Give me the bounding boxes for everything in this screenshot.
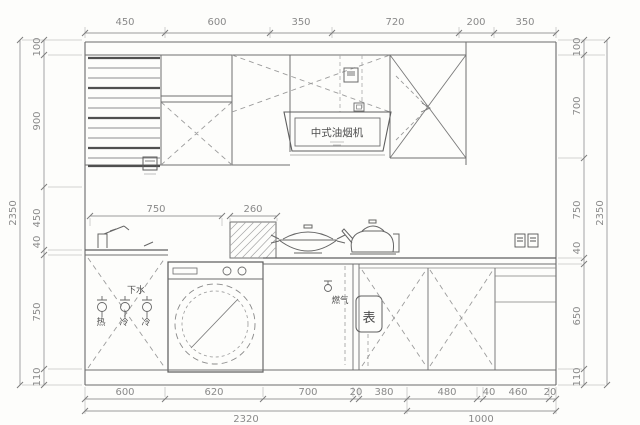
washer-display (173, 268, 197, 274)
dim-left-750: 750 (32, 302, 43, 321)
range-hood-label: 中式油烟机 (311, 126, 364, 139)
switch-box-marks (145, 161, 155, 165)
drawer-lines (495, 276, 556, 302)
dim-left-900: 900 (32, 111, 43, 130)
dim-left-100: 100 (32, 37, 43, 56)
right-cabinet-dividers (428, 268, 495, 370)
mid-dimension-row: 750 260 (87, 204, 280, 219)
dim-top-350: 350 (291, 17, 310, 28)
valve-label-cold2: 冷 (141, 316, 150, 328)
dim-left-40: 40 (32, 236, 43, 249)
right-dimension-column: 100 700 750 40 650 110 2350 (572, 37, 610, 388)
left-dimension-column: 100 900 450 40 750 110 2350 (8, 37, 47, 388)
dim-bot-40: 40 (483, 387, 496, 398)
flue (340, 55, 364, 112)
dim-left-total: 2350 (8, 200, 19, 225)
dim-bot-460: 460 (508, 387, 527, 398)
dim-bot-total-1000: 1000 (468, 414, 493, 425)
washer-door-chord (191, 299, 238, 348)
range-hood: 中式油烟机 (284, 112, 391, 155)
sink-counter-area (85, 222, 276, 258)
dim-bot-620: 620 (204, 387, 223, 398)
valve-label-cold1: 冷 (119, 316, 128, 328)
duct-box (230, 222, 276, 258)
sink-cabinet-dashes (88, 258, 165, 368)
dim-bot-480: 480 (437, 387, 456, 398)
rack-stripes-thick (88, 58, 160, 166)
socket-icons (515, 234, 538, 247)
cabinet-divider-lines (161, 96, 232, 102)
dim-mid-750: 750 (146, 204, 165, 215)
rack-stripes-thin (88, 68, 160, 158)
door-open-arrow-dashes (396, 76, 428, 140)
cooktop-counter (263, 220, 556, 268)
damper-inner (347, 71, 355, 76)
top-dimension-row: 450 600 350 720 200 350 (82, 17, 559, 36)
valve-label-hot: 热 (96, 316, 105, 328)
dim-top-200: 200 (466, 17, 485, 28)
dim-top-600: 600 (207, 17, 226, 28)
dim-mid-260: 260 (243, 204, 262, 215)
door-swing-dashes (161, 55, 390, 165)
wok-icon (271, 225, 345, 253)
dim-bot-20: 20 (350, 387, 363, 398)
dim-top-350b: 350 (515, 17, 534, 28)
dim-right-total: 2350 (595, 200, 606, 225)
washer-door-outer (175, 284, 255, 364)
dim-bot-20b: 20 (544, 387, 557, 398)
bottom-dimension-rows: 600 620 700 20 380 480 40 460 20 2320 10… (82, 387, 559, 425)
duct-hatch (230, 222, 276, 258)
dim-bot-total-2320: 2320 (233, 414, 258, 425)
dim-right-100: 100 (572, 37, 583, 56)
door-open-arrowhead (421, 103, 430, 112)
wall-cabinet-frame (85, 42, 466, 165)
dim-bot-380: 380 (374, 387, 393, 398)
washer-body (168, 262, 263, 372)
washing-machine (168, 262, 263, 372)
washer-knob-1 (223, 267, 231, 275)
gas-section: 燃气 表 (263, 264, 382, 372)
gas-meter-label: 表 (362, 311, 375, 326)
kettle-icon (342, 220, 399, 254)
bottom-dim-lines (85, 399, 556, 411)
dim-left-110: 110 (32, 367, 43, 386)
gas-valve-icon (324, 281, 332, 292)
dim-right-40: 40 (572, 242, 583, 255)
dim-bot-700: 700 (298, 387, 317, 398)
hood-sub-mark (330, 142, 344, 145)
tall-cabinet-x (390, 55, 466, 158)
washer-knob-2 (238, 267, 246, 275)
kitchen-elevation-drawing: 450 600 350 720 200 350 100 900 450 40 7… (0, 0, 640, 425)
switch-box-icon (143, 157, 157, 170)
dim-top-450: 450 (115, 17, 134, 28)
dim-right-700: 700 (572, 96, 583, 115)
drain-label: 下水 (127, 284, 145, 296)
extension-lines (22, 27, 605, 414)
dim-left-450: 450 (32, 208, 43, 227)
dim-bot-600: 600 (115, 387, 134, 398)
gas-label: 燃气 (331, 295, 349, 306)
sink-base-cabinet: 下水 热 冷 冷 (88, 258, 165, 368)
wall-cabinets: 中式油烟机 (85, 42, 466, 174)
dim-right-750: 750 (572, 200, 583, 219)
flue-outlet-inner (357, 105, 362, 109)
valve-icons (97, 296, 152, 317)
dim-right-110: 110 (572, 367, 583, 386)
dim-top-720: 720 (385, 17, 404, 28)
dim-right-650: 650 (572, 306, 583, 325)
duct-hatched-box (230, 222, 276, 258)
elevation-svg: 450 600 350 720 200 350 100 900 450 40 7… (0, 0, 640, 425)
flue-outlet-icon (354, 103, 364, 111)
faucet-icon (98, 226, 153, 248)
shelf-rack (88, 58, 160, 174)
